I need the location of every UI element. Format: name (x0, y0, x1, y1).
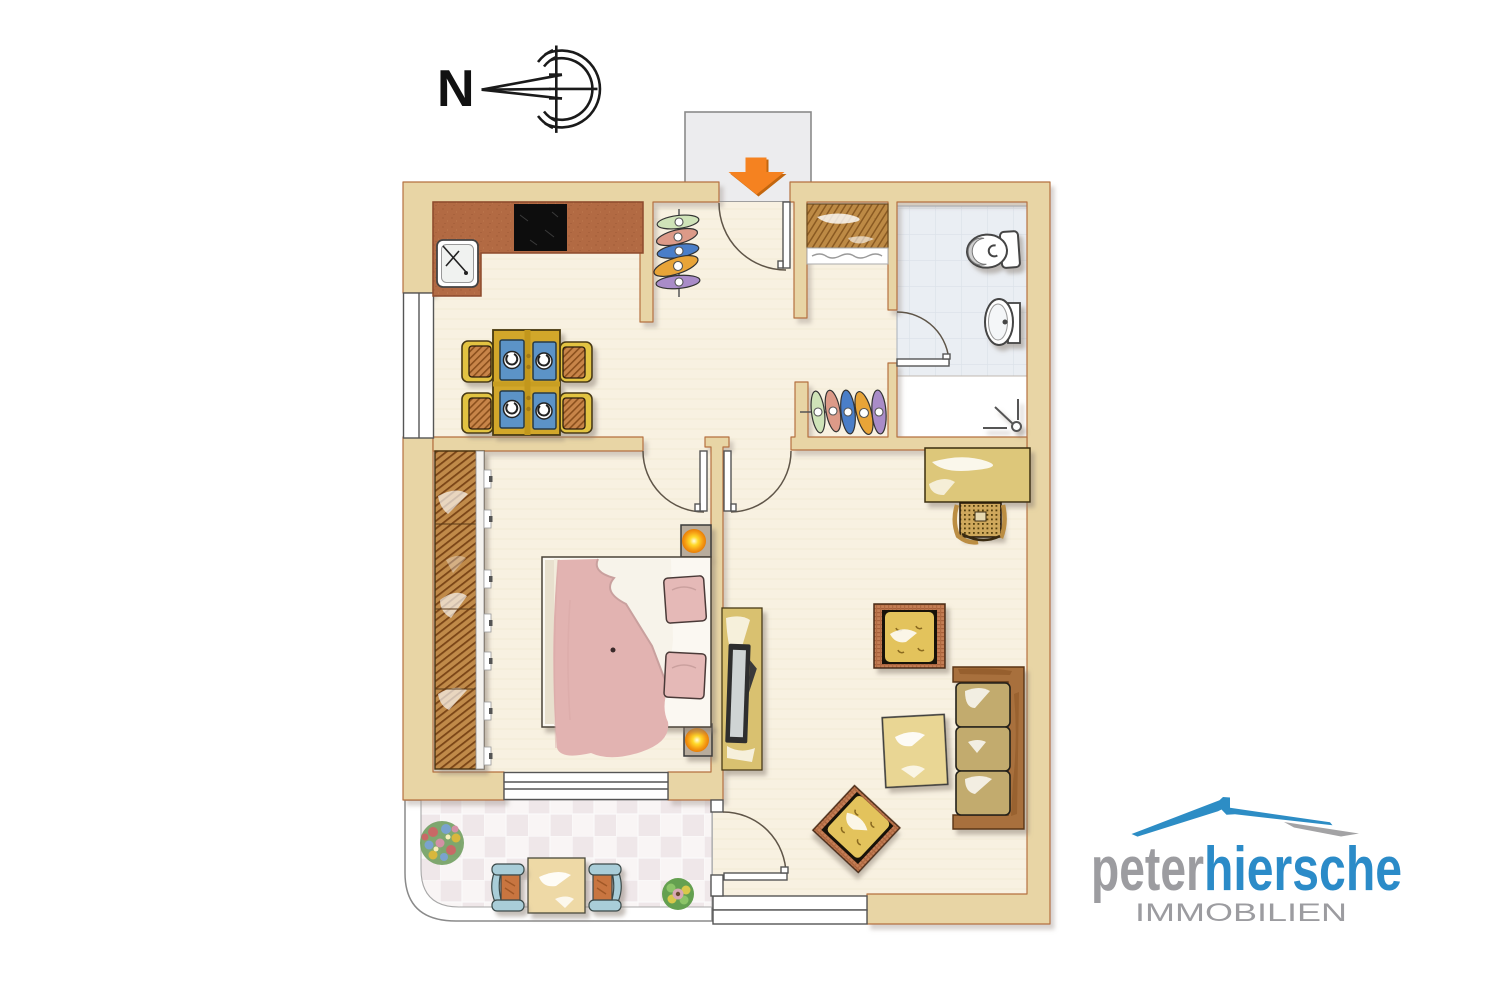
svg-text:N: N (437, 60, 475, 118)
svg-text:peter: peter (1091, 835, 1204, 904)
svg-text:hiersche: hiersche (1204, 835, 1402, 904)
svg-text:IMMOBILIEN: IMMOBILIEN (1135, 899, 1347, 927)
